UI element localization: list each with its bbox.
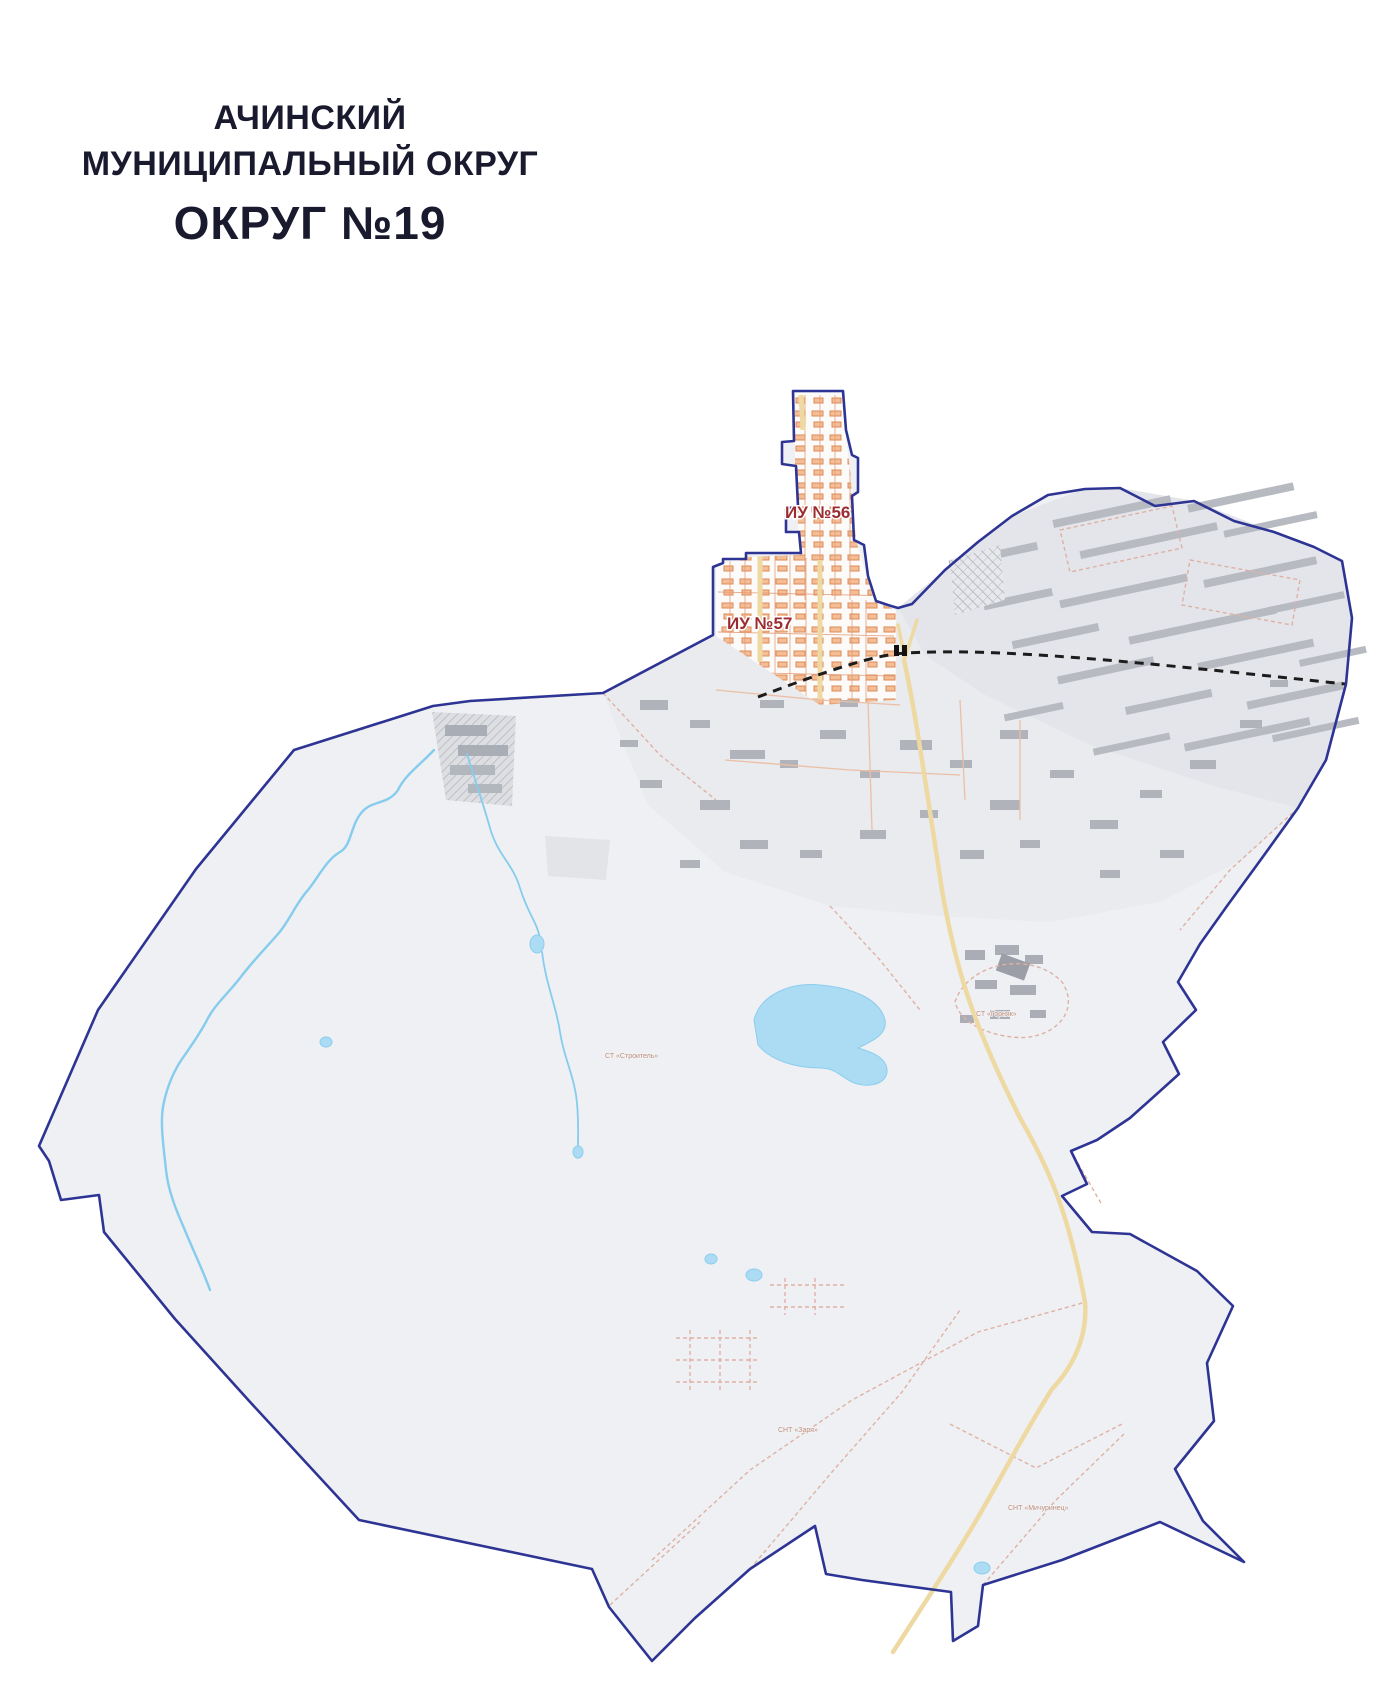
map-page: АЧИНСКИЙ МУНИЦИПАЛЬНЫЙ ОКРУГ ОКРУГ №19 bbox=[0, 0, 1400, 1704]
district-map: ИУ №56 ИУ №57 СТ «Строитель» СТ «Горняк»… bbox=[0, 0, 1400, 1704]
polling-station-label-56: ИУ №56 bbox=[785, 503, 850, 522]
micro-label-3: СНТ «Заря» bbox=[778, 1427, 818, 1434]
micro-label-4: СНТ «Мичуринец» bbox=[1008, 1505, 1069, 1512]
micro-label-2: СТ «Горняк» bbox=[976, 1011, 1017, 1018]
polling-station-label-57: ИУ №57 bbox=[727, 614, 792, 633]
micro-label-1: СТ «Строитель» bbox=[605, 1053, 658, 1060]
